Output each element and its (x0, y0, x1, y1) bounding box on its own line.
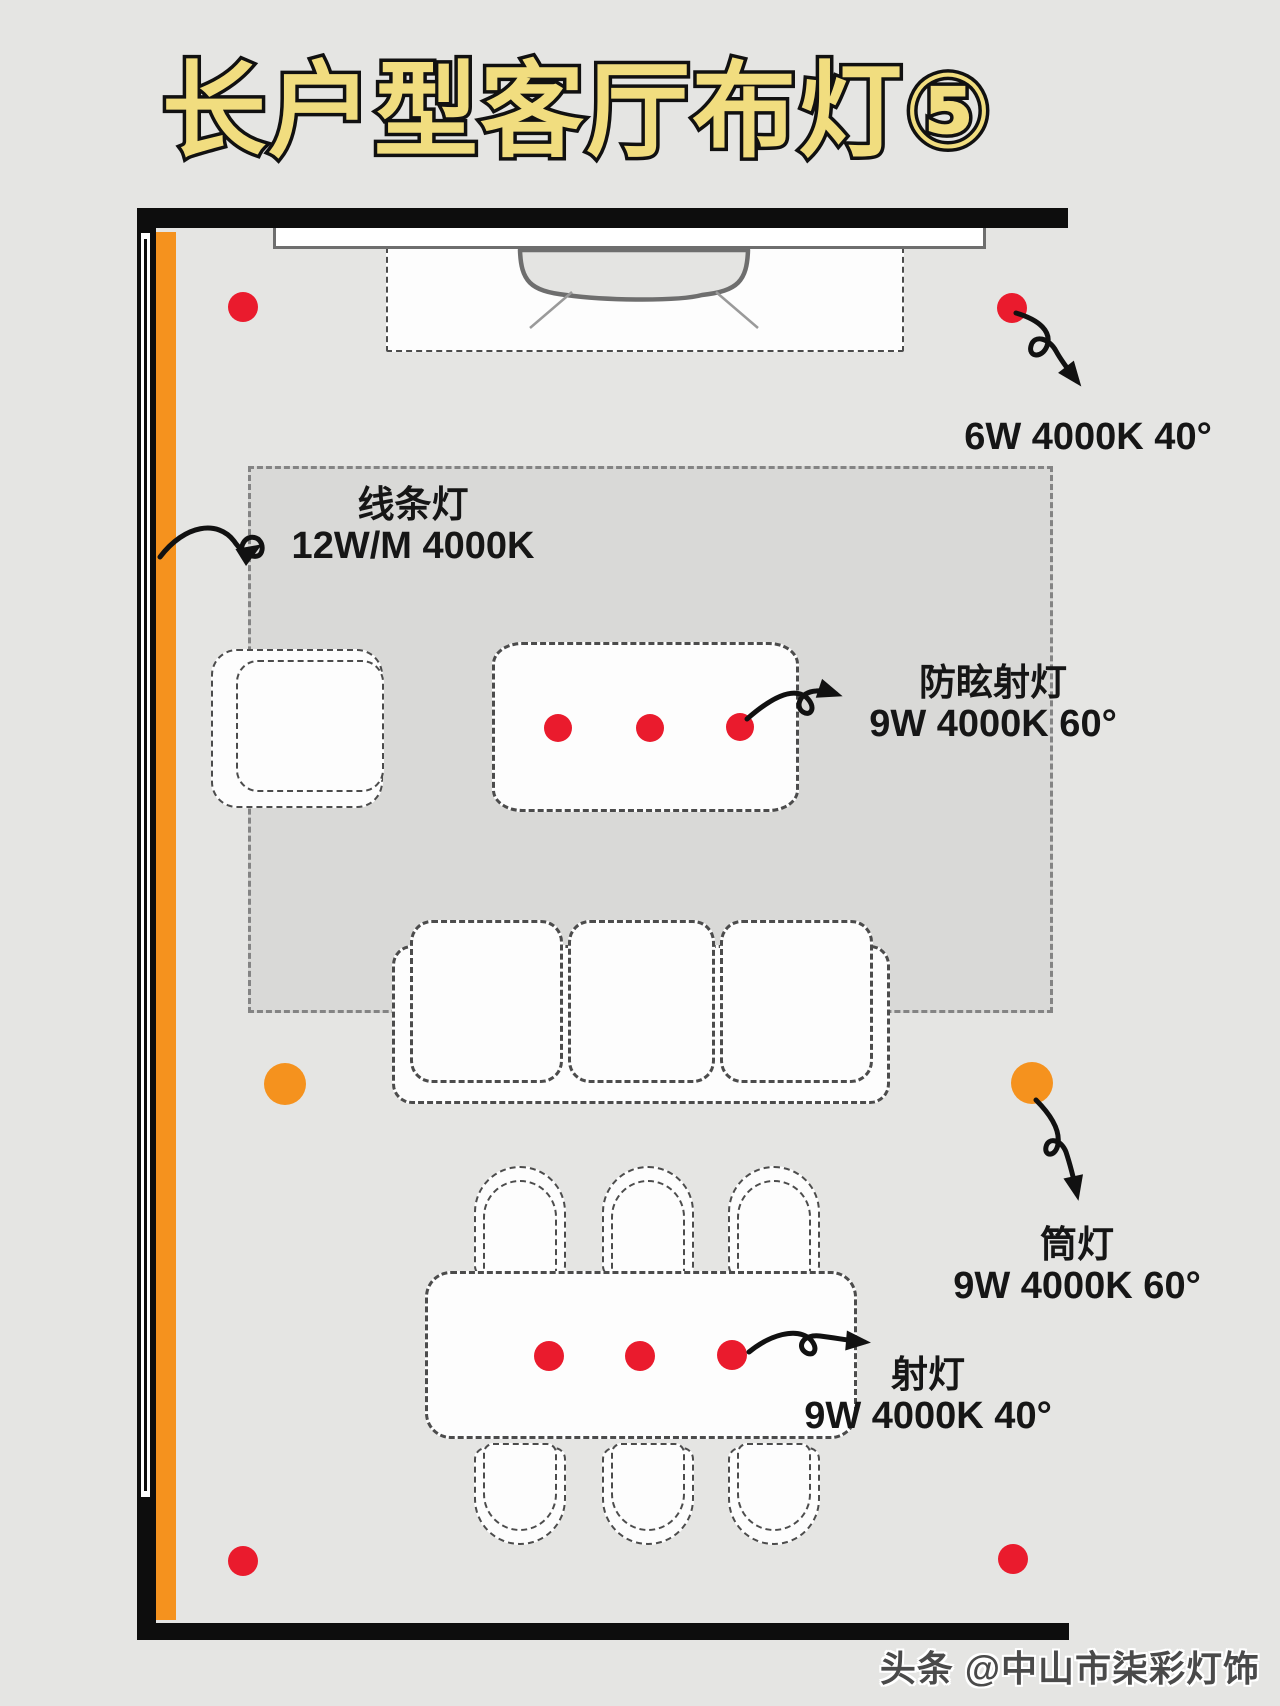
dining-chair-seat (737, 1180, 811, 1282)
arrow-tv-wall-spot (1016, 313, 1077, 381)
dining-chair-seat (611, 1443, 685, 1531)
light-dot-orange (264, 1063, 306, 1105)
dining-chair-seat (611, 1180, 685, 1282)
light-dot-red (544, 714, 572, 742)
label-line-light: 线条灯 12W/M 4000K (292, 484, 535, 568)
label-anti-glare-name: 防眩射灯 (869, 662, 1117, 703)
label-dining-spot-name: 射灯 (804, 1354, 1052, 1395)
label-anti-glare-spec: 9W 4000K 60° (869, 703, 1117, 746)
label-downlight-name: 筒灯 (953, 1224, 1201, 1265)
light-dot-red (717, 1340, 747, 1370)
label-downlight: 筒灯 9W 4000K 60° (953, 1224, 1201, 1308)
sofa-cushion (568, 920, 715, 1083)
dining-chair-seat (483, 1180, 557, 1282)
tv-media-zone (386, 247, 904, 352)
watermark: 头条 @中山市柒彩灯饰 (880, 1640, 1260, 1692)
light-dot-red (998, 1544, 1028, 1574)
light-dot-red (997, 293, 1027, 323)
light-dot-red (228, 1546, 258, 1576)
label-tv-wall-spot-spec: 6W 4000K 40° (964, 416, 1212, 459)
label-dining-spot-spec: 9W 4000K 40° (804, 1395, 1052, 1438)
arrow-downlight (1036, 1100, 1077, 1194)
sofa-cushion (720, 920, 873, 1083)
label-line-light-name: 线条灯 (292, 484, 535, 525)
label-downlight-spec: 9W 4000K 60° (953, 1265, 1201, 1308)
light-dot-red (625, 1341, 655, 1371)
light-dot-red (636, 714, 664, 742)
window-track-line (144, 239, 147, 1491)
dining-chair-seat (483, 1443, 557, 1531)
led-line-light-strip (156, 232, 176, 1620)
label-line-light-spec: 12W/M 4000K (292, 525, 535, 568)
light-dot-red (726, 713, 754, 741)
label-anti-glare: 防眩射灯 9W 4000K 60° (869, 662, 1117, 746)
label-dining-spot: 射灯 9W 4000K 40° (804, 1354, 1052, 1438)
wall-bottom (137, 1623, 1069, 1640)
page-title: 长户型客厅布灯⑤ (0, 26, 1156, 177)
armchair-seat (236, 660, 384, 792)
wall-top (137, 208, 1068, 228)
light-dot-red (534, 1341, 564, 1371)
label-tv-wall-spot: 6W 4000K 40° (964, 416, 1212, 459)
light-dot-red (228, 292, 258, 322)
sofa-cushion (410, 920, 563, 1083)
light-dot-orange (1011, 1062, 1053, 1104)
dining-chair-seat (737, 1443, 811, 1531)
tv-console (273, 225, 986, 249)
